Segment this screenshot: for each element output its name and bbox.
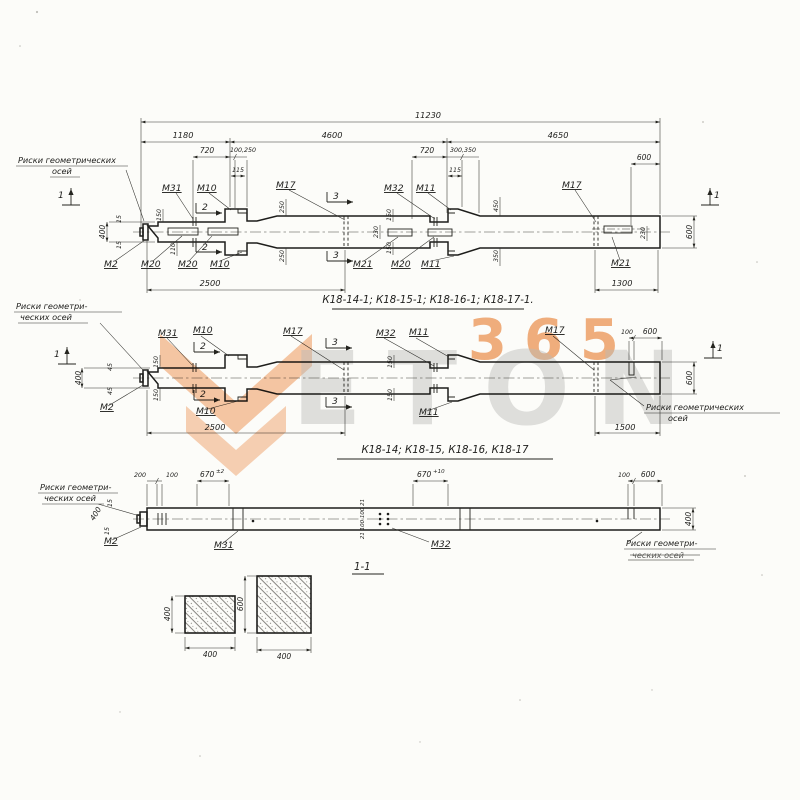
mark-label-m11: М11 [419, 407, 439, 418]
dim-label: 115 [449, 167, 461, 174]
dim-label: 1500 [615, 422, 636, 432]
dim-label: 400 [277, 652, 292, 661]
note-line-1: Риски геометрических [646, 402, 744, 412]
dim-label: 250 [279, 250, 286, 262]
dim-label: 150 [156, 209, 163, 221]
drawing-1-title: К18-14-1; К18-15-1; К18-16-1; К18-17-1. [322, 295, 533, 306]
dim-label: 150 [387, 356, 394, 368]
dim-label: 670 [200, 470, 215, 479]
section-flag-1: 1 [54, 349, 60, 360]
dim-label: 150 [386, 209, 393, 221]
dim-label: 400 [684, 512, 693, 527]
drawing-1-elevation-k18-x-1: 11230 1180 4600 4650 720 100,250 720 300… [16, 110, 720, 309]
dim-label: 400 [203, 650, 218, 659]
dim-label: 720 [200, 146, 215, 155]
dim-label: 600 [236, 597, 245, 612]
cross-section-400x400: 400 400 [163, 596, 235, 659]
mark-label-m17: М17 [283, 326, 303, 337]
lifting-loop [629, 362, 634, 375]
dim-label: 450 [493, 200, 500, 212]
blueprint-page: 11230 1180 4600 4650 720 100,250 720 300… [0, 0, 800, 800]
dim-label: 1300 [612, 278, 633, 288]
section-square [185, 596, 235, 633]
section-flag-1: 1 [714, 190, 720, 201]
mark-label-m11: М11 [421, 259, 441, 270]
mark-label-m32: М32 [384, 183, 404, 194]
mark-label-m20: М20 [391, 259, 411, 270]
dim-label: 600 [685, 371, 694, 386]
dim-label: 15 [107, 499, 114, 507]
mark-label-m32: М32 [431, 539, 451, 550]
dim-label: 100,250 [230, 147, 256, 154]
dimension-lines [82, 335, 694, 433]
drawing-2-elevation-k18-x: 400 45 45 150 150 150 150 2500 1500 100 … [14, 301, 780, 459]
mark-label-m20: М20 [178, 259, 198, 270]
dim-label: 11230 [415, 110, 441, 120]
axes-note-right: Риски геометрических осей [644, 402, 780, 423]
dim-label: 1180 [173, 130, 194, 140]
section-view-label: 1-1 [354, 562, 371, 573]
dim-label: 115 [232, 167, 244, 174]
section-flag-2: 2 [202, 202, 208, 213]
dim-label: 600 [641, 470, 656, 479]
mark-label-m17: М17 [562, 180, 582, 191]
section-flag-3: 3 [333, 191, 339, 202]
dim-label: 670 [417, 470, 432, 479]
mark-label-m20: М20 [141, 259, 161, 270]
dim-label: 150 [153, 389, 160, 401]
mark-leaders [108, 336, 644, 411]
section-flag-1: 1 [58, 190, 64, 201]
axes-note-left: Риски геометри- ческих осей [14, 301, 143, 370]
dim-label: 150 [386, 242, 393, 254]
dim-label: 15 [116, 215, 123, 223]
dim-label: 600 [637, 153, 652, 162]
drawing-2-title: К18-14; К18-15, К18-16, К18-17 [362, 445, 529, 456]
drawing-canvas: 11230 1180 4600 4650 720 100,250 720 300… [0, 0, 800, 800]
axes-note-right: Риски геометри- ческих осей [624, 538, 716, 560]
mark-label-m21: М21 [611, 258, 631, 269]
mark-labels: М31 М10 М17 М32 М11 М17 М2 М20 М20 М10 М… [104, 180, 631, 270]
note-line-1: Риски геометри- [16, 301, 87, 311]
embedded-plates-m20-m21 [168, 226, 650, 236]
mark-label-m32: М32 [376, 328, 396, 339]
note-line-2: ческих осей [44, 493, 97, 503]
dim-label: 45 [107, 363, 114, 371]
note-line-1: Риски геометрических [18, 155, 116, 165]
section-flag-2: 2 [202, 242, 208, 253]
dim-label: 110 [170, 243, 177, 255]
dim-label: 45 [107, 387, 114, 395]
axes-note-left: Риски геометри- ческих осей [38, 482, 140, 516]
section-flag-3: 3 [333, 250, 339, 261]
note-line-1: Риски геометри- [626, 538, 697, 548]
dim-label: 300,350 [450, 147, 476, 154]
dim-label: 15 [104, 527, 111, 535]
cross-section-400x600: 600 400 [236, 576, 311, 661]
paper-specks [19, 11, 763, 757]
dimension-labels: 200 100 670 ±2 670 +10 100 600 400 15 15… [88, 469, 693, 539]
dim-label: 15 [116, 241, 123, 249]
mark-label-m10: М10 [197, 183, 217, 194]
drawing-3-plan-view: 200 100 670 ±2 670 +10 100 600 400 15 15… [38, 469, 716, 574]
dim-label: 100 [621, 329, 633, 336]
mark-labels: М2 М31 М32 [104, 536, 451, 551]
dimension-labels: 400 45 45 150 150 150 150 2500 1500 100 … [74, 327, 694, 432]
note-line-2: ческих осей [20, 312, 73, 322]
extension-lines [147, 484, 696, 530]
section-square [257, 576, 311, 633]
section-flag-2: 2 [200, 341, 206, 352]
mark-label-m10: М10 [193, 325, 213, 336]
dim-label: 200 [134, 472, 146, 479]
dim-label: 720 [420, 146, 435, 155]
mark-label-m21: М21 [353, 259, 373, 270]
mark-label-m17: М17 [276, 180, 296, 191]
dim-label: 2500 [200, 278, 221, 288]
mark-label-m2: М2 [100, 402, 114, 413]
section-flag-3: 3 [332, 396, 338, 407]
dim-label: 400 [88, 505, 103, 522]
section-flag-1: 1 [717, 343, 723, 354]
mark-label-m31: М31 [214, 540, 234, 551]
dim-label: 250 [279, 201, 286, 213]
dim-label: 400 [98, 225, 107, 240]
dim-label: 600 [685, 225, 694, 240]
dim-tolerance: +10 [433, 469, 445, 475]
axes-note-left: Риски геометрических осей [16, 155, 144, 221]
section-flag-3: 3 [332, 337, 338, 348]
dim-label: 230 [640, 227, 647, 239]
dim-label: 400 [74, 371, 83, 386]
dim-label: 230 [373, 226, 380, 238]
dim-label: 4650 [548, 130, 569, 140]
dim-label: 21 100 100 21 [360, 499, 366, 539]
dim-label: 600 [643, 327, 658, 336]
mark-label-m17: М17 [545, 325, 565, 336]
section-flag-2: 2 [200, 389, 206, 400]
note-line-2: осей [668, 413, 689, 423]
dim-tolerance: ±2 [216, 469, 225, 475]
note-line-1: Риски геометри- [40, 482, 111, 492]
mark-label-m31: М31 [162, 183, 182, 194]
dim-label: 400 [163, 607, 172, 622]
note-line-2: осей [52, 166, 73, 176]
dim-label: 2500 [205, 422, 226, 432]
dim-label: 150 [153, 356, 160, 368]
dim-label: 350 [493, 250, 500, 262]
mark-label-m2: М2 [104, 536, 118, 547]
dim-label: 4600 [322, 130, 343, 140]
dim-label: 100 [618, 472, 630, 479]
mark-label-m10: М10 [210, 259, 230, 270]
mark-label-m2: М2 [104, 259, 118, 270]
mark-label-m11: М11 [416, 183, 436, 194]
mark-leaders [115, 190, 620, 261]
dim-label: 150 [387, 389, 394, 401]
mark-label-m11: М11 [409, 327, 429, 338]
mark-label-m31: М31 [158, 328, 178, 339]
dim-label: 100 [166, 472, 178, 479]
mark-label-m10: М10 [196, 406, 216, 417]
